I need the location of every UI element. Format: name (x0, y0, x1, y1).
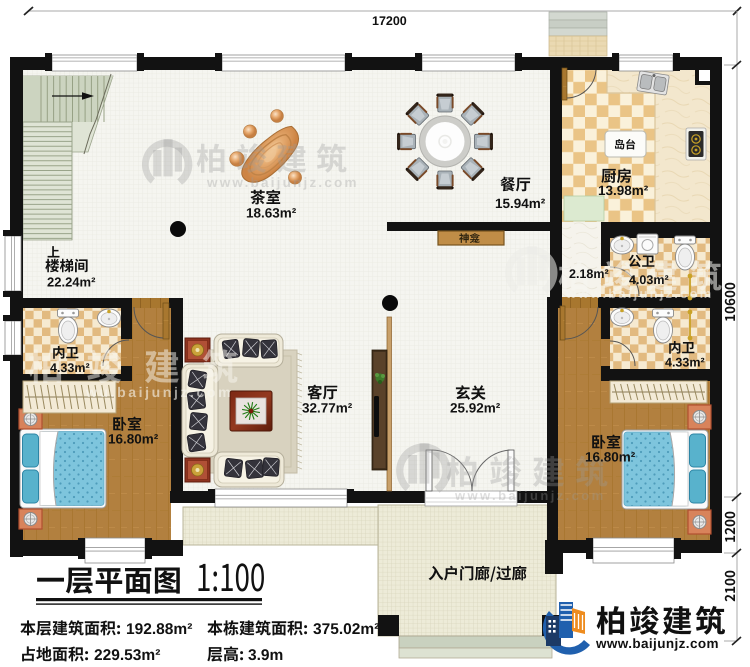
svg-text:22.24m²: 22.24m² (47, 275, 96, 290)
svg-text:13.98m²: 13.98m² (598, 183, 649, 198)
svg-text:15.94m²: 15.94m² (495, 196, 546, 211)
svg-text:32.77m²: 32.77m² (302, 401, 353, 416)
svg-text:18.63m²: 18.63m² (246, 206, 297, 221)
svg-text:192.88m²: 192.88m² (126, 621, 192, 638)
svg-text:16.80m²: 16.80m² (585, 450, 636, 465)
svg-text:3.9m: 3.9m (248, 647, 283, 664)
svg-text:www.baijunjz.com: www.baijunjz.com (206, 175, 359, 190)
svg-text:4.33m²: 4.33m² (50, 361, 90, 375)
svg-text:229.53m²: 229.53m² (94, 647, 160, 664)
svg-text:wu.baijunjz.com: wu.baijunjz.com (85, 384, 233, 400)
svg-text:4.03m²: 4.03m² (629, 273, 669, 287)
svg-text:www.baijunjz.com: www.baijunjz.com (565, 286, 713, 301)
svg-text:17200: 17200 (372, 14, 407, 28)
svg-text:www.baijunjz.com: www.baijunjz.com (454, 488, 606, 503)
svg-text:2.18m²: 2.18m² (569, 267, 609, 281)
svg-text:4.33m²: 4.33m² (665, 356, 705, 370)
svg-text:375.02m²: 375.02m² (313, 621, 379, 638)
svg-text:16.80m²: 16.80m² (108, 432, 159, 447)
svg-text:www.baijunjz.com: www.baijunjz.com (595, 636, 719, 651)
svg-text:25.92m²: 25.92m² (450, 401, 501, 416)
